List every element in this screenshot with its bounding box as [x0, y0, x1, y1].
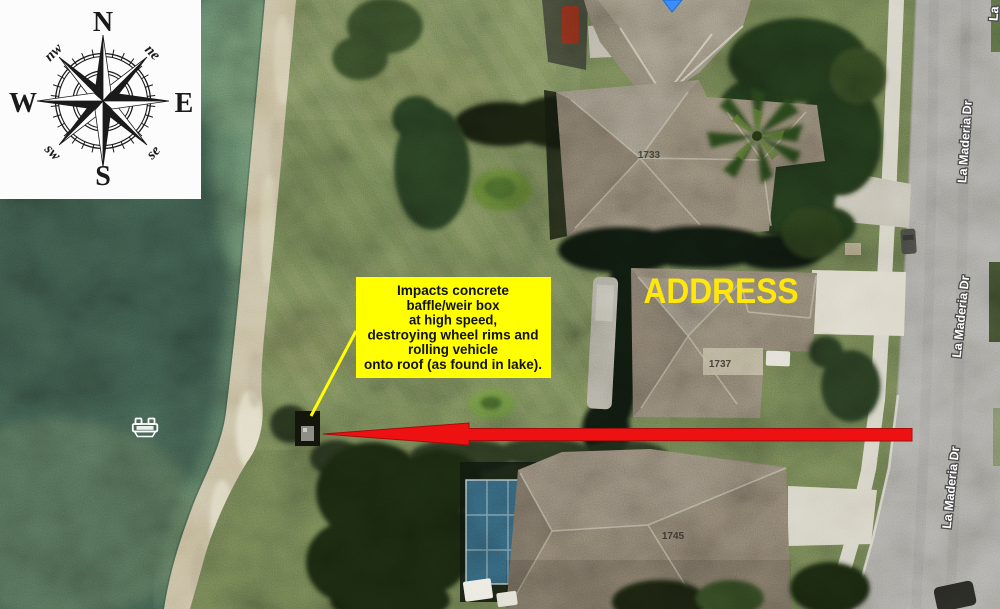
- svg-text:1737: 1737: [709, 359, 732, 370]
- svg-text:destroying wheel rims and: destroying wheel rims and: [368, 327, 539, 342]
- svg-text:La: La: [987, 5, 1000, 22]
- svg-text:1745: 1745: [662, 531, 685, 542]
- svg-text:ADDRESS: ADDRESS: [644, 272, 799, 311]
- svg-text:rolling vehicle: rolling vehicle: [408, 342, 498, 357]
- svg-text:S: S: [95, 161, 111, 192]
- svg-text:onto roof (as found in lake).: onto roof (as found in lake).: [364, 357, 542, 372]
- svg-text:baffle/weir box: baffle/weir box: [407, 298, 500, 313]
- svg-text:at high speed,: at high speed,: [409, 313, 497, 328]
- svg-text:1733: 1733: [638, 150, 661, 161]
- svg-text:E: E: [175, 88, 194, 119]
- svg-text:Impacts concrete: Impacts concrete: [397, 283, 509, 298]
- svg-text:W: W: [9, 88, 37, 119]
- svg-text:N: N: [93, 7, 113, 38]
